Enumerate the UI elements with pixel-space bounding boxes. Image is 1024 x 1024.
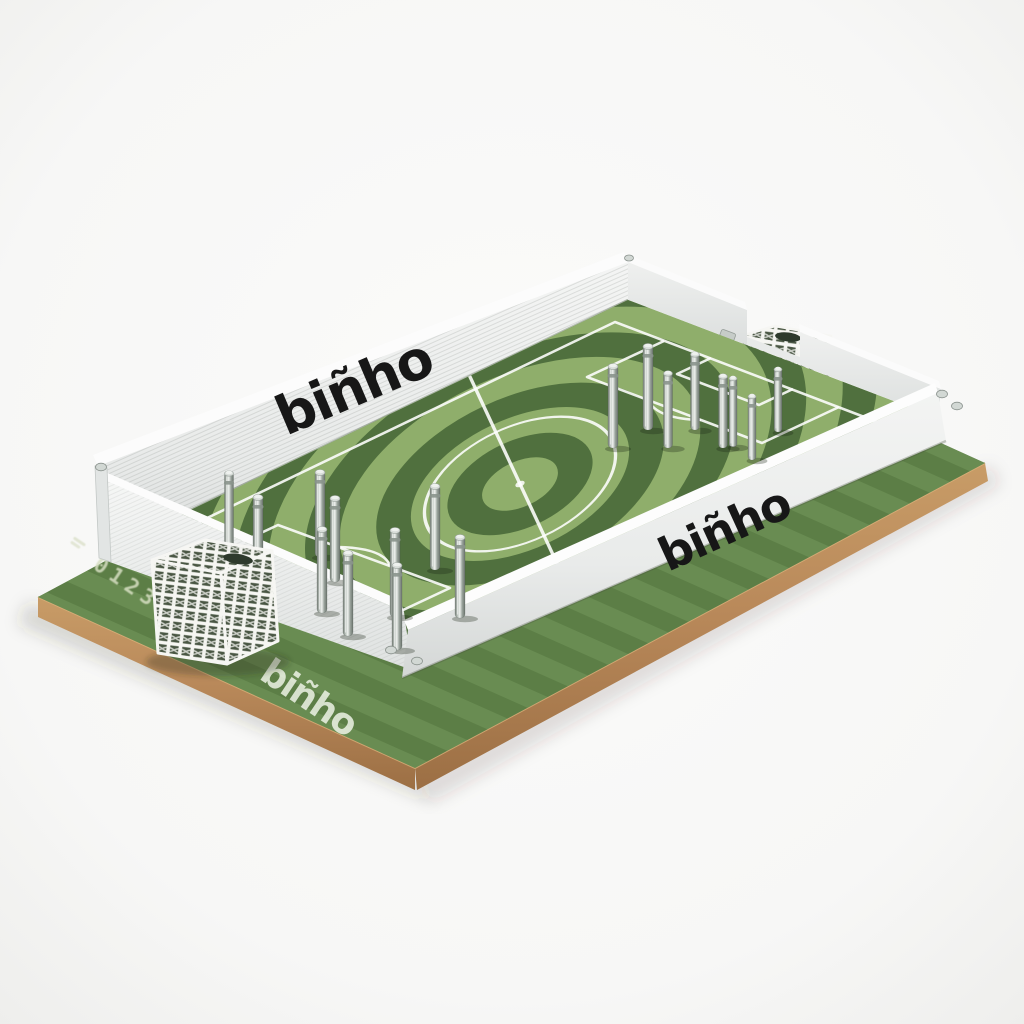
board-scene: 0123456 biñho biñho [0,0,1024,1024]
product-photo: 0123456 biñho biñho [0,0,1024,1024]
goal-lower-left [146,540,290,676]
